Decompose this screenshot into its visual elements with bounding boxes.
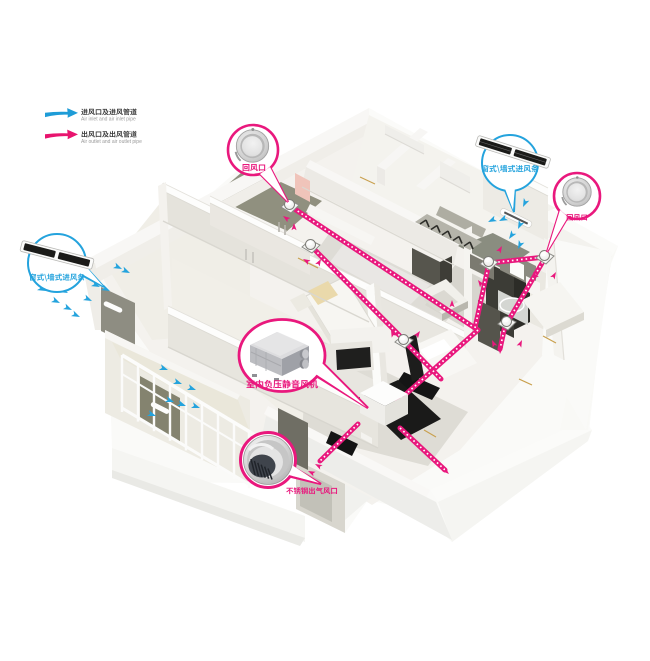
- svg-text:Air inlet and air inlet pipe: Air inlet and air inlet pipe: [81, 117, 136, 123]
- svg-text:Air outlet and air outlet pipe: Air outlet and air outlet pipe: [81, 139, 142, 145]
